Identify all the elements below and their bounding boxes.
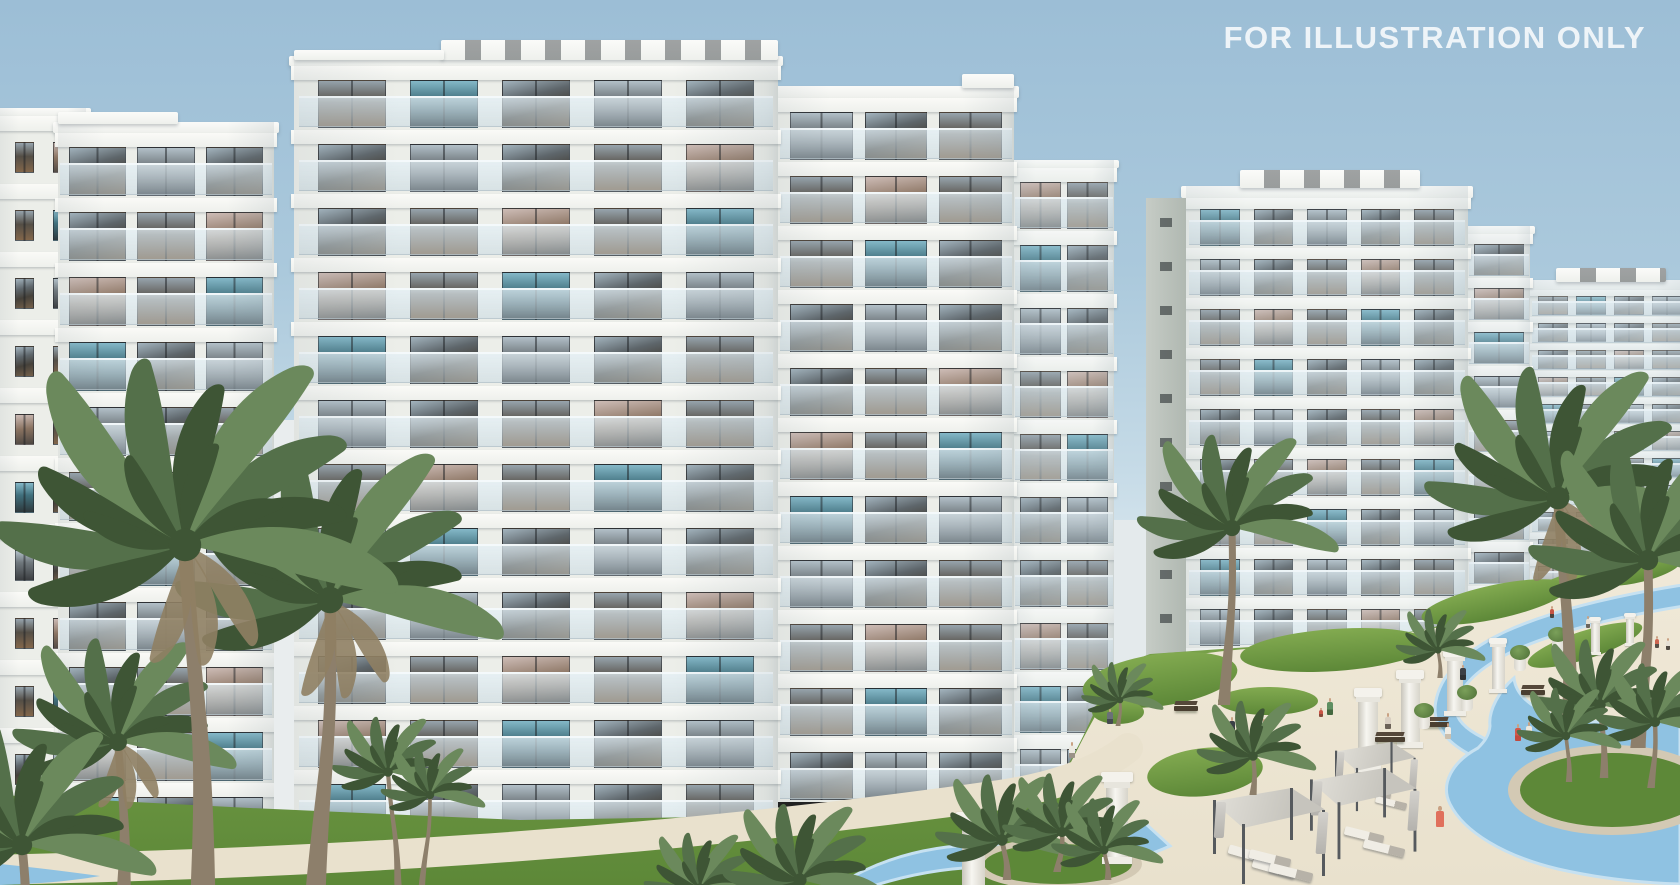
palm-crown (721, 799, 890, 885)
watermark-text: FOR ILLUSTRATION ONLY (1224, 20, 1646, 56)
palm-trunk (419, 795, 432, 885)
palm-crown-center (1224, 520, 1240, 536)
palm-tree (1195, 697, 1318, 795)
palm-crown-center (12, 835, 32, 855)
palm-trunk (1000, 840, 1012, 880)
palm-crown-center (169, 529, 201, 561)
palm-trunk (1436, 650, 1442, 678)
palm-trees (0, 0, 1680, 885)
palm-crown (380, 743, 488, 814)
palm-tree (721, 799, 890, 885)
palm-crown-center (383, 767, 393, 777)
palm-crown (1195, 697, 1318, 778)
palm-crown-center (317, 587, 343, 613)
palm-trunk (1249, 756, 1257, 795)
palm-crown (1080, 660, 1165, 716)
palm-trunk (1218, 528, 1236, 705)
palm-trunk (386, 772, 402, 885)
palm-crown (1135, 429, 1343, 566)
palm-crown-center (1650, 717, 1660, 727)
palm-crown-center (1562, 732, 1570, 740)
palm-crown-center (109, 733, 127, 751)
palm-crown-center (996, 834, 1007, 845)
palm-trunk (1564, 736, 1572, 782)
palm-tree (1395, 606, 1487, 678)
palm-crown-center (426, 791, 434, 799)
palm-crown-center (1117, 697, 1124, 704)
palm-tree (1080, 660, 1165, 726)
palm-crown (1395, 606, 1487, 667)
palm-tree (1050, 795, 1166, 880)
palm-crown-center (1638, 550, 1658, 570)
palm-trunk (1102, 850, 1111, 880)
architectural-rendering: FOR ILLUSTRATION ONLY (0, 0, 1680, 885)
palm-crown-center (1248, 751, 1258, 761)
palm-crown-center (1434, 646, 1441, 653)
palm-crown-center (1547, 487, 1570, 510)
palm-trunk (1647, 722, 1658, 788)
palm-crown-center (1100, 846, 1109, 855)
palm-trunk (1116, 700, 1122, 726)
palm-tree (1135, 429, 1343, 705)
